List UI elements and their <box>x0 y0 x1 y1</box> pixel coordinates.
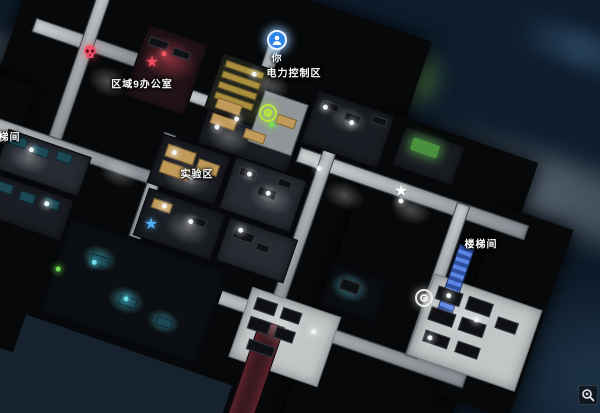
objective-star-blue-star-icon: ★ <box>144 217 158 233</box>
map-label-stairwell-left: 楼梯间 <box>0 129 21 144</box>
zoom-in-button[interactable] <box>578 385 598 405</box>
zoom-in-icon <box>581 388 595 402</box>
game-map-surface <box>0 0 600 413</box>
map-label-area9-office: 区域9办公室 <box>111 76 173 91</box>
map-label-experiment-zone: 实验区 <box>181 166 214 181</box>
map-label-power-control-zone: 电力控制区 <box>267 65 322 80</box>
exit-rings-green-icon <box>259 104 277 122</box>
objective-star-white-star-icon: ★ <box>394 184 408 200</box>
player-position-icon <box>267 30 287 50</box>
objective-star-red-star-icon: ★ <box>145 55 159 71</box>
enemy-skull-icon <box>82 44 98 60</box>
map-viewport[interactable]: 区域9办公室你电力控制区实验区楼梯间楼梯间★★★ <box>0 0 600 413</box>
exit-rings-white-icon <box>415 289 433 307</box>
map-label-stairwell-right: 楼梯间 <box>465 236 498 251</box>
map-label-player-you: 你 <box>272 50 283 65</box>
